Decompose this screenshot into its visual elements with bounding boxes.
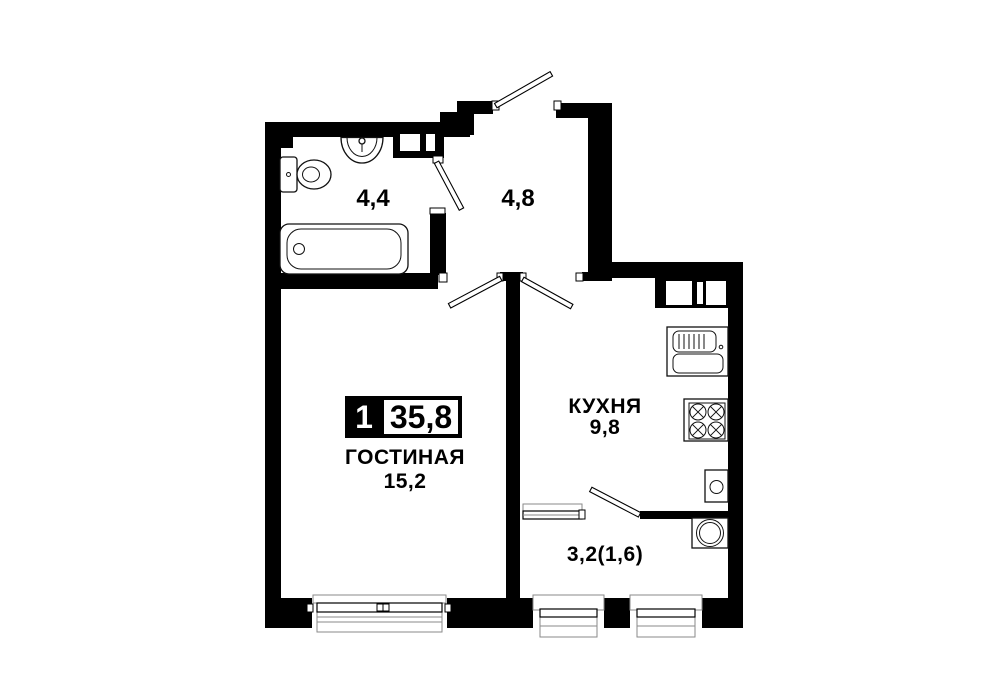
window-jamb <box>307 604 313 612</box>
door-leaf <box>495 72 553 108</box>
toilet-icon <box>280 157 331 192</box>
faucet <box>359 138 365 144</box>
bathroom-door <box>430 156 464 214</box>
wall-pier-top-left <box>279 135 293 148</box>
wall-bottom-2 <box>447 598 533 628</box>
door-leaf <box>590 487 641 517</box>
window-sill <box>313 595 446 603</box>
balcony-window-1 <box>533 595 604 637</box>
balcony-door <box>590 487 641 517</box>
kitchen-shaft-opening-1 <box>666 281 692 305</box>
wall-bottom-1 <box>265 598 312 628</box>
stove-icon <box>684 399 728 441</box>
wall-bottom-4 <box>702 598 743 628</box>
wall-kitchen-top <box>588 262 743 278</box>
washing-machine-icon <box>705 470 728 502</box>
door-leaf <box>522 277 573 309</box>
wall-hall-right <box>588 103 612 278</box>
toilet-tank <box>280 157 297 192</box>
bath-shaft-opening-1 <box>400 134 420 151</box>
badge-rooms-count: 1 <box>355 399 373 435</box>
window-sill <box>533 595 604 610</box>
balcony-window-2 <box>630 595 702 637</box>
wall-living-kitchen-divider <box>506 280 520 628</box>
hall-area-label: 4,8 <box>501 185 534 212</box>
kitchen-shaft-opening-2 <box>697 282 703 304</box>
window-jamb <box>579 510 585 519</box>
door-jamb <box>430 208 445 214</box>
bathtub-icon <box>280 224 408 274</box>
bath-shaft-opening-2 <box>426 134 435 151</box>
entrance-door <box>492 72 561 110</box>
kitchen-name-label: КУХНЯ <box>568 395 641 418</box>
bathtub-outer <box>280 224 408 274</box>
living-room-door <box>439 273 503 308</box>
window-frame <box>540 609 597 617</box>
door-jamb <box>439 273 447 282</box>
window-sill <box>523 504 582 511</box>
wall-bathroom-right-stub <box>430 213 446 275</box>
water-heater-icon <box>692 518 728 548</box>
balcony-area-label: 3,2(1,6) <box>567 543 643 566</box>
door-jamb <box>554 101 561 110</box>
kitchen-sink-icon <box>667 327 728 376</box>
window-center-mullion <box>383 604 389 611</box>
bathroom-area-label: 4,4 <box>356 185 390 212</box>
living-room-window <box>307 595 451 632</box>
floor-plan-svg: 4,4 4,8 КУХНЯ 9,8 ГОСТИНАЯ 15,2 3,2(1,6)… <box>0 0 1006 700</box>
kitchen-balcony-window <box>523 504 585 519</box>
door-leaf <box>448 276 502 308</box>
window-jamb <box>445 604 451 612</box>
wall-entrance-step-fill <box>440 112 474 135</box>
living-name-label: ГОСТИНАЯ <box>345 446 465 469</box>
washbasin-icon <box>341 138 383 164</box>
door-jamb <box>576 273 583 281</box>
apartment-badge: 1 35,8 <box>345 396 462 438</box>
kitchen-area-label: 9,8 <box>590 416 621 439</box>
window-outer-band <box>637 617 695 637</box>
wall-bottom-3 <box>604 598 630 628</box>
kitchen-shaft-opening-3 <box>706 281 726 305</box>
door-leaf <box>434 161 463 210</box>
living-area-label: 15,2 <box>384 470 427 493</box>
wall-bathroom-bottom <box>265 273 438 289</box>
window-sill <box>630 595 702 610</box>
washer-body <box>705 470 728 502</box>
window-frame <box>637 609 695 617</box>
window-outer-band <box>540 617 597 637</box>
window-center-mullion <box>377 604 383 611</box>
wall-outer-left <box>265 122 281 628</box>
floor-plan: 4,4 4,8 КУХНЯ 9,8 ГОСТИНАЯ 15,2 3,2(1,6)… <box>0 0 1006 700</box>
wall-outer-right <box>728 262 743 628</box>
badge-total-area: 35,8 <box>390 399 452 435</box>
kitchen-door <box>520 273 583 309</box>
